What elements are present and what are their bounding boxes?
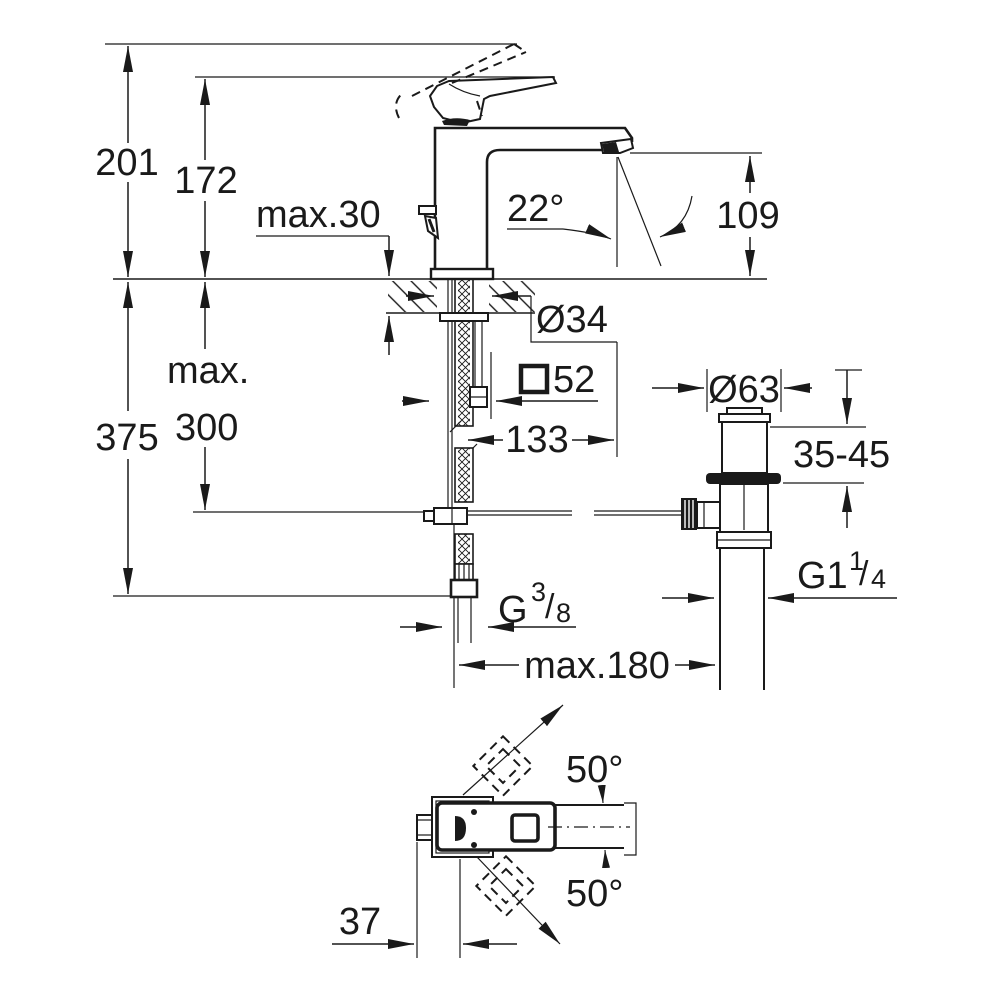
faucet-side-view: [396, 44, 661, 279]
dim-waste-thread: G1 1 / 4: [662, 546, 897, 598]
dim-spout-top-height-label: 172: [174, 160, 237, 202]
dim-waste-clamping: 35-45: [770, 370, 890, 528]
dim-spout-top-height: 172: [174, 79, 237, 277]
dim-spout-reach-label: 133: [505, 419, 568, 461]
dim-hole-diameter-label: Ø34: [536, 299, 608, 341]
dim-spray-angle-label: 22°: [507, 188, 564, 230]
dim-base-square: 52: [402, 352, 598, 419]
pop-up-waste-view: [681, 408, 781, 690]
stream-angle-arrow: [660, 196, 692, 237]
waste-gasket: [706, 473, 781, 484]
dim-axis-offset-label: 37: [339, 901, 381, 943]
dim-waste-clamping-label: 35-45: [793, 434, 890, 476]
dim-below-deck-total-label: 375: [95, 417, 158, 459]
dim-swivel-up-label: 50°: [566, 749, 623, 791]
dim-base-square-label: 52: [553, 359, 595, 401]
dim-swivel-down: 50°: [477, 857, 623, 944]
dim-supply-thread: G 3 / 8: [400, 577, 576, 631]
supply-stub-top-view: [417, 815, 432, 840]
supply-thread-denominator: 8: [556, 598, 571, 628]
spout-top-view: [512, 815, 538, 841]
dim-waste-flange-label: Ø63: [708, 369, 780, 411]
dim-below-deck-total: 375: [95, 282, 158, 594]
dim-below-deck-max: max. 300: [167, 282, 249, 510]
pop-up-lift-knob: [419, 206, 436, 214]
technical-drawing-page: 201 172 375 max. 300 max.30 22° 109: [0, 0, 1000, 1000]
dim-rod-reach-label: max.180: [524, 645, 670, 687]
dim-swivel-up: 50°: [463, 705, 623, 795]
waste-thread-base: G1: [797, 555, 848, 597]
water-stream-line: [618, 157, 661, 266]
waste-thread-denominator: 4: [871, 564, 886, 594]
dim-deck-thickness: max.30: [256, 194, 389, 355]
dim-deck-thickness-label: max.30: [256, 194, 381, 236]
waste-thread-slash: /: [859, 555, 869, 593]
supply-thread-numerator: 3: [531, 577, 546, 607]
dim-total-height-label: 201: [95, 142, 158, 184]
dim-swivel-span-arrows: [602, 789, 606, 867]
supply-thread-slash: /: [545, 588, 555, 626]
dim-below-deck-max-word: max.: [167, 350, 249, 392]
dim-total-height: 201: [95, 46, 158, 277]
dim-spout-height: 109: [716, 156, 779, 276]
waste-upper-body: [722, 422, 767, 473]
dim-swivel-down-label: 50°: [566, 873, 623, 915]
supply-thread-base: G: [498, 589, 528, 631]
dim-spray-angle: 22°: [507, 188, 692, 239]
dim-spout-height-label: 109: [716, 195, 779, 237]
base-plate: [431, 269, 493, 279]
dim-spout-reach: 133: [468, 419, 614, 461]
dim-below-deck-max-value: 300: [175, 407, 238, 449]
lever-handle: [430, 77, 556, 126]
faucet-dimension-drawing: 201 172 375 max. 300 max.30 22° 109: [0, 0, 1000, 1000]
dim-rod-reach: max.180: [459, 645, 715, 687]
dim-waste-flange: Ø63: [652, 369, 812, 412]
square-symbol: [521, 366, 547, 392]
